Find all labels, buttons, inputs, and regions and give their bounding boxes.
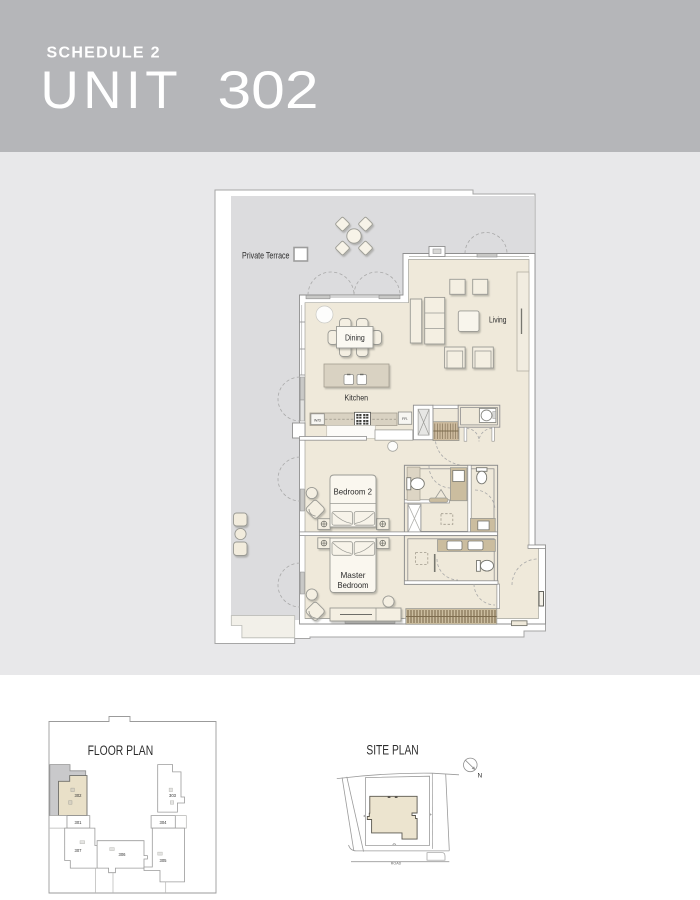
svg-text:301: 301 <box>75 820 83 825</box>
svg-text:302: 302 <box>75 793 83 798</box>
svg-text:N: N <box>478 773 483 780</box>
svg-text:ROAD: ROAD <box>391 862 402 866</box>
svg-text:UNIT: UNIT <box>41 61 183 120</box>
svg-text:FLOOR PLAN: FLOOR PLAN <box>88 743 154 758</box>
svg-text:302: 302 <box>218 61 319 120</box>
svg-text:307: 307 <box>75 848 83 853</box>
svg-text:Private Terrace: Private Terrace <box>242 251 290 261</box>
svg-text:SCHEDULE 2: SCHEDULE 2 <box>47 45 161 62</box>
svg-text:Kitchen: Kitchen <box>345 393 369 403</box>
svg-text:Master: Master <box>341 570 366 580</box>
svg-text:FR.: FR. <box>402 417 408 421</box>
svg-text:Bedroom 2: Bedroom 2 <box>334 487 373 497</box>
svg-text:Living: Living <box>489 315 507 325</box>
svg-text:W/D: W/D <box>314 418 322 422</box>
svg-text:Dining: Dining <box>345 333 365 343</box>
svg-text:Bedroom: Bedroom <box>338 580 369 590</box>
svg-text:306: 306 <box>119 852 127 857</box>
svg-text:304: 304 <box>160 820 168 825</box>
svg-text:305: 305 <box>160 858 168 863</box>
svg-text:SITE PLAN: SITE PLAN <box>366 743 418 758</box>
svg-text:303: 303 <box>169 793 177 798</box>
